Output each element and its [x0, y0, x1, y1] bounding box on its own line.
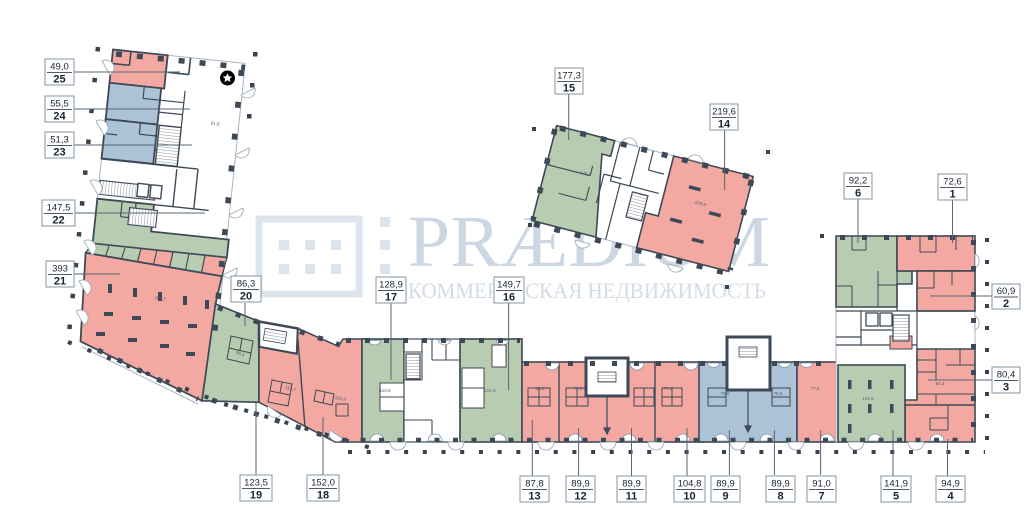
svg-text:17: 17 — [385, 292, 397, 304]
svg-text:77,6: 77,6 — [811, 386, 820, 391]
svg-text:3: 3 — [1003, 382, 1009, 394]
svg-text:21: 21 — [54, 276, 66, 288]
svg-text:10: 10 — [683, 491, 695, 503]
svg-text:4: 4 — [947, 491, 954, 503]
svg-text:101,6: 101,6 — [862, 396, 874, 401]
svg-text:91,0: 91,0 — [812, 479, 831, 490]
svg-text:6: 6 — [855, 188, 861, 200]
svg-text:23: 23 — [53, 147, 65, 159]
svg-text:84,3: 84,3 — [936, 381, 945, 386]
svg-text:88,3: 88,3 — [536, 386, 545, 391]
svg-text:147,5: 147,5 — [47, 203, 71, 214]
svg-text:49,0: 49,0 — [50, 62, 69, 73]
svg-text:18: 18 — [317, 490, 329, 502]
svg-text:149,7: 149,7 — [497, 280, 521, 291]
svg-text:79,2: 79,2 — [664, 386, 673, 391]
svg-text:14: 14 — [718, 119, 731, 131]
svg-text:123,5: 123,5 — [244, 478, 268, 489]
svg-text:75,6: 75,6 — [721, 391, 730, 396]
svg-text:86,3: 86,3 — [237, 279, 256, 290]
svg-text:60,9: 60,9 — [997, 286, 1016, 297]
svg-text:7: 7 — [818, 491, 824, 503]
svg-text:89,9: 89,9 — [716, 479, 735, 490]
svg-text:110,6: 110,6 — [380, 388, 391, 393]
svg-text:92,2: 92,2 — [849, 176, 868, 187]
svg-text:8: 8 — [777, 491, 783, 503]
svg-text:75,2: 75,2 — [774, 391, 783, 396]
svg-text:89,9: 89,9 — [571, 479, 590, 490]
svg-text:128,9: 128,9 — [379, 280, 403, 291]
svg-text:87,8: 87,8 — [525, 479, 544, 490]
svg-text:91,9: 91,9 — [211, 121, 221, 127]
svg-text:5: 5 — [893, 491, 899, 503]
svg-text:13: 13 — [528, 491, 540, 503]
svg-text:104,8: 104,8 — [678, 479, 702, 490]
svg-text:19: 19 — [250, 490, 262, 502]
svg-text:55,5: 55,5 — [50, 99, 69, 110]
svg-text:16: 16 — [503, 292, 515, 304]
svg-text:КОММЕРЧЕСКАЯ НЕДВИЖИМОСТЬ: КОММЕРЧЕСКАЯ НЕДВИЖИМОСТЬ — [408, 278, 766, 303]
svg-text:1: 1 — [949, 189, 955, 201]
svg-text:20: 20 — [240, 291, 252, 303]
svg-text:177,3: 177,3 — [557, 71, 581, 82]
svg-text:393: 393 — [52, 264, 68, 275]
svg-text:89,9: 89,9 — [622, 479, 641, 490]
svg-text:219,6: 219,6 — [712, 107, 736, 118]
svg-text:141,9: 141,9 — [884, 479, 908, 490]
svg-text:11: 11 — [626, 491, 638, 503]
svg-text:9: 9 — [722, 491, 728, 503]
svg-text:94,9: 94,9 — [941, 479, 960, 490]
svg-text:51,3: 51,3 — [50, 135, 69, 146]
svg-text:12: 12 — [574, 491, 586, 503]
svg-text:2: 2 — [1003, 298, 1009, 310]
svg-text:15: 15 — [563, 83, 575, 95]
svg-text:25: 25 — [53, 74, 65, 86]
svg-text:121,6: 121,6 — [484, 388, 496, 393]
svg-text:152,0: 152,0 — [311, 478, 335, 489]
svg-text:24: 24 — [53, 111, 66, 123]
svg-text:79,2: 79,2 — [574, 386, 583, 391]
svg-text:89,9: 89,9 — [771, 479, 790, 490]
svg-text:22: 22 — [52, 215, 64, 227]
svg-text:80,4: 80,4 — [997, 370, 1016, 381]
svg-text:72,6: 72,6 — [943, 177, 962, 188]
